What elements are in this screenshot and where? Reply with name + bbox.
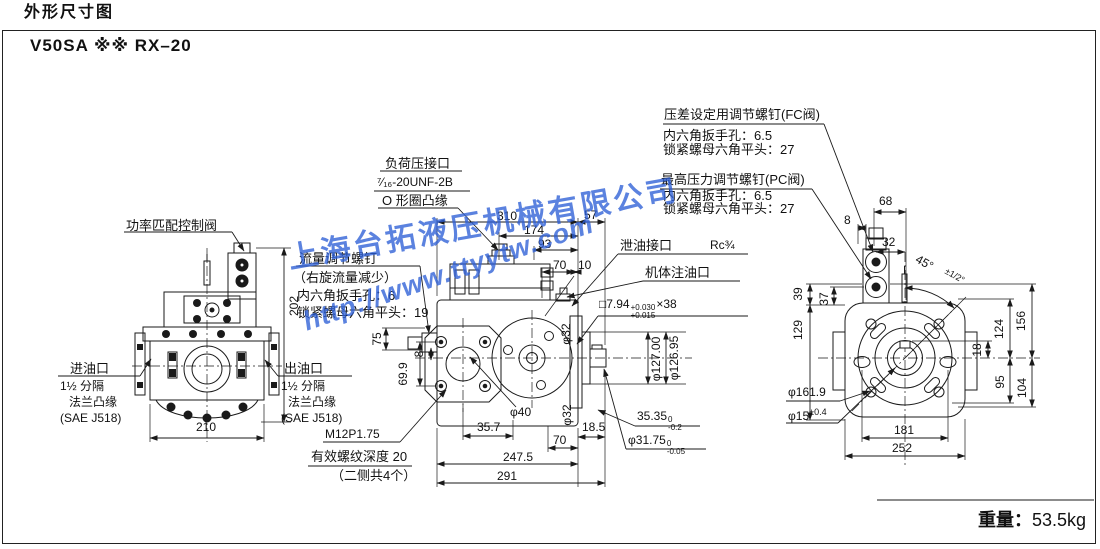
dim-68: 68 (879, 194, 892, 208)
dim-70-bottom: 70 (553, 433, 566, 447)
dim-39: 39 (791, 287, 805, 300)
inlet-note-1: 1½ 分隔 (60, 379, 104, 393)
outlet-note-3: (SAE J518) (281, 411, 342, 425)
dim-phi15: φ15±0.4 (788, 407, 827, 423)
dim-156: 156 (1014, 311, 1028, 331)
pc-valve-label: 最高压力调节螺钉(PC阀) (661, 172, 805, 187)
model-number: V50SA ※※ RX–20 (30, 36, 192, 56)
dim-32: 32 (882, 235, 895, 249)
outlet-note-2: 法兰凸缘 (288, 395, 336, 409)
dim-247-5: 247.5 (503, 450, 533, 464)
dim-phi127: φ127.00 (649, 337, 663, 381)
load-port-label: 负荷压接口 (385, 156, 450, 171)
outlet-note-1: 1½ 分隔 (281, 379, 325, 393)
thread-count-note: （二侧共4个） (331, 468, 416, 483)
dim-181: 181 (894, 423, 914, 437)
dim-8-rear: 8 (844, 213, 851, 227)
dim-18-rear: 18 (970, 343, 984, 356)
dim-phi31-75: φ31.750-0.05 (628, 433, 686, 456)
dim-18-5: 18.5 (582, 420, 605, 434)
power-valve-label: 功率匹配控制阀 (126, 218, 217, 233)
thread-depth-note: 有效螺纹深度 20 (311, 449, 407, 464)
drawing-page: 外形尺寸图 V50SA ※※ RX–20 上海台拓液压机械有限公司 http:/… (0, 0, 1100, 549)
dim-75: 75 (370, 332, 384, 345)
outlet-label: 出油口 (284, 361, 323, 376)
dim-70: 70 (553, 258, 566, 272)
weight-value: 53.5kg (1032, 510, 1086, 530)
weight-note: 重量：53.5kg (978, 506, 1086, 532)
fc-valve-label: 压差设定用调节螺钉(FC阀) (664, 107, 820, 122)
inlet-note-2: 法兰凸缘 (69, 395, 117, 409)
dim-phi32-upper: φ32 (559, 323, 573, 344)
dim-phi40: φ40 (510, 405, 531, 419)
dim-37: 37 (817, 292, 831, 305)
dim-10: 10 (578, 258, 591, 272)
dim-phi161-9: φ161.9 (788, 385, 826, 399)
fc-valve-note-2: 锁紧螺母六角平头：27 (663, 142, 794, 157)
dim-69-9: 69.9 (396, 362, 410, 385)
key-spec-callout: □7.94+0.030+0.015×38 (599, 297, 677, 320)
dim-35-7: 35.7 (477, 420, 500, 434)
dim-phi32-lower: φ32 (560, 404, 574, 425)
dim-8: 8 (412, 351, 426, 358)
dim-35-35: 35.350-0.2 (637, 409, 683, 432)
dim-124: 124 (992, 319, 1006, 339)
dim-252: 252 (892, 441, 912, 455)
dim-291: 291 (497, 469, 517, 483)
inlet-note-3: (SAE J518) (60, 411, 121, 425)
fill-port-label: 机体注油口 (645, 265, 710, 280)
dim-210: 210 (196, 420, 216, 434)
dim-129: 129 (791, 320, 805, 340)
weight-label: 重量： (978, 510, 1032, 530)
technical-drawing (0, 0, 1100, 549)
dim-95: 95 (993, 375, 1007, 388)
load-port-thread: ⁷⁄₁₆-20UNF-2B (377, 175, 453, 189)
drain-port-size: Rc¾ (710, 238, 735, 252)
page-title: 外形尺寸图 (24, 4, 114, 23)
drain-port-label: 泄油接口 (620, 238, 672, 253)
thread-callout: M12P1.75 (325, 427, 380, 441)
pc-valve-note-2: 锁紧螺母六角平头：27 (663, 201, 794, 216)
inlet-label: 进油口 (70, 361, 109, 376)
dim-104: 104 (1015, 378, 1029, 398)
dim-phi126-95: φ126.95 (667, 336, 681, 380)
